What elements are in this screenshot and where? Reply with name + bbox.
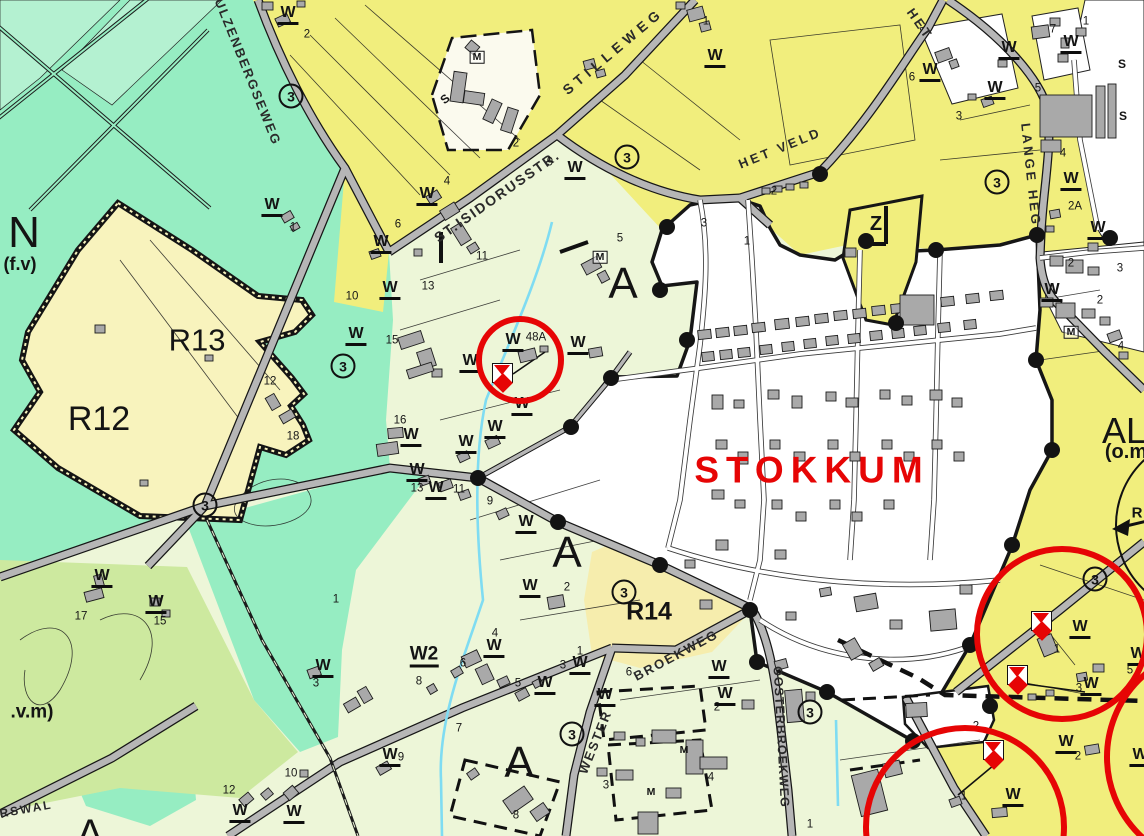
region-label: (f.v) [4,255,37,273]
house-number: 13 [411,483,424,495]
base-map-svg [0,0,1144,836]
house-number: 4 [1118,341,1124,353]
house-number: 10 [346,291,359,303]
region-label: A [77,814,104,836]
circled-number: 3 [612,580,637,605]
well-marker: W [1060,171,1081,191]
circled-number: 3 [615,145,640,170]
m-label: M [680,745,689,756]
well-marker: W [567,335,588,355]
boundary-dot [1004,537,1020,553]
boundary-dot [812,166,828,182]
boundary-dot [652,282,668,298]
circled-number: 3 [560,722,585,747]
well-marker: W [483,638,504,658]
well-marker: W [379,280,400,300]
house-number: 4 [708,772,714,784]
place-name-label: STOKKUM [694,452,929,489]
house-number: 3 [560,660,566,672]
well-marker: W [484,419,505,439]
house-number: 5 [617,233,623,245]
red-circle-annotation [476,316,564,404]
region-label: R12 [68,402,130,436]
well-marker: W [998,40,1019,60]
region-label: (o.m [1105,442,1144,462]
well-marker: W [345,326,366,346]
house-number: 7 [1050,24,1056,36]
house-number: 18 [287,431,300,443]
region-label: .v.m) [11,703,54,722]
m-label: M [470,51,485,64]
boundary-dot [679,332,695,348]
s-label: S [1118,58,1126,70]
well-marker: W [569,655,590,675]
well-marker: W [1041,282,1062,302]
house-number: 1 [333,594,339,606]
house-number: 11 [453,484,465,496]
house-number: 8 [513,810,519,822]
boundary-dot [749,654,765,670]
boundary-dot [659,219,675,235]
circled-number: 3 [798,700,823,725]
boundary-dot [1029,227,1045,243]
house-number: 15 [386,335,399,347]
red-diamond-marker [1007,665,1029,697]
well-marker: W [704,48,725,68]
well-marker: W [406,462,427,482]
region-label: A [504,741,533,785]
boundary-dot [1102,230,1118,246]
well-marker: W [379,747,400,767]
house-number: 2 [513,138,519,150]
region-label: W2 [410,645,439,668]
m-label: M [647,787,656,798]
boundary-dot [982,698,998,714]
well-marker: W [594,687,615,707]
region-label: R14 [626,600,672,625]
region-label: Z [870,214,882,234]
circled-number: 3 [279,84,304,109]
well-marker: W [416,186,437,206]
house-number: 3 [1117,263,1123,275]
map-stage[interactable]: ULZENBERGSEWEGSTILLEWEGST.ISIDORUSSTR.HE… [0,0,1144,836]
well-marker: W [708,659,729,679]
house-number: 1 [1083,16,1089,28]
well-marker: W [534,675,555,695]
m-label: M [593,251,608,264]
well-marker: W [984,80,1005,100]
boundary-dot [888,315,904,331]
well-marker: W [229,803,250,823]
boundary-dot [928,242,944,258]
house-number: 8 [416,676,422,688]
well-marker: W [515,514,536,534]
boundary-dot [742,602,758,618]
boundary-dot [819,684,835,700]
boundary-dot [603,370,619,386]
well-marker: W [370,234,391,254]
house-number: 5 [515,678,521,690]
well-marker: W [145,594,166,614]
region-label: R13 [169,325,226,356]
house-number: 1 [744,236,750,248]
house-number: 9 [547,157,553,169]
well-marker: W [1060,34,1081,54]
house-number: 4 [1060,148,1066,160]
house-number: 2A [1068,201,1082,213]
red-diamond-marker [1031,611,1053,643]
house-number: 1 [290,222,296,234]
house-number: 3 [313,678,319,690]
well-marker: W [1055,734,1076,754]
well-marker: W [277,5,298,25]
house-number: 5 [1035,83,1041,95]
house-number: 3 [603,780,609,792]
well-marker: W [564,160,585,180]
well-marker: W [519,578,540,598]
house-number: 6 [395,219,401,231]
house-number: 9 [487,496,493,508]
house-number: 6 [626,667,632,679]
boundary-dot [1044,442,1060,458]
boundary-dot [858,233,874,249]
well-marker: W [283,804,304,824]
house-number: 13 [422,281,435,293]
house-number: 6 [909,72,915,84]
house-number: 3 [701,218,707,230]
well-marker: W [312,658,333,678]
red-diamond-marker [492,363,514,395]
house-number: 1 [703,16,709,28]
house-number: 2 [1097,295,1103,307]
boundary-dot [1028,352,1044,368]
house-number: 2 [771,186,777,198]
boundary-dot [550,514,566,530]
well-marker: W [455,434,476,454]
well-marker: W [919,62,940,82]
house-number: 3 [956,111,962,123]
circled-number: 3 [331,354,356,379]
circled-number: 3 [985,170,1010,195]
circled-number: 3 [193,493,218,518]
house-number: 17 [75,611,88,623]
s-label: S [1119,110,1127,122]
house-number: 1 [807,819,813,831]
boundary-dot [652,557,668,573]
well-marker: W [91,568,112,588]
region-label: N [8,211,40,255]
house-number: 11 [476,251,488,263]
red-diamond-marker [983,740,1005,772]
house-number: 6 [460,658,466,670]
well-marker: W [714,686,735,706]
region-label: A [608,262,637,306]
house-number: 10 [285,768,298,780]
house-number: 7 [456,723,462,735]
well-marker: W [400,427,421,447]
m-label: M [1064,326,1079,339]
region-label: A [552,531,581,575]
well-marker: W [261,197,282,217]
house-number: 4 [444,176,450,188]
house-number: 2 [304,29,310,41]
house-number: 12 [264,376,277,388]
house-number: 15 [154,616,167,628]
house-number: 2 [564,582,570,594]
house-number: 2 [1068,258,1074,270]
boundary-dot [563,419,579,435]
well-marker: W [425,480,446,500]
red-circle-annotation [974,546,1144,722]
boundary-dot [470,470,486,486]
house-number: 12 [223,785,236,797]
